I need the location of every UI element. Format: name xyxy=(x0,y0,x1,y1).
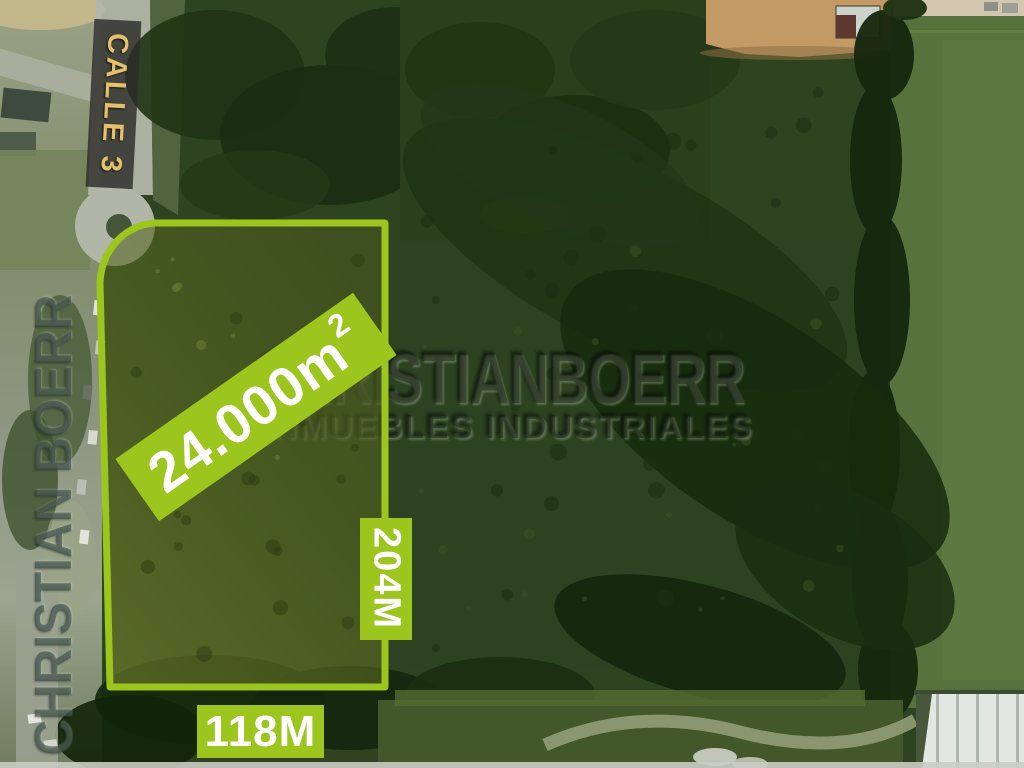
side-length-label: 204M xyxy=(360,518,412,640)
satellite-map: CHRISTIAN BOERR CHRISTIANBOERR INMUEBLES… xyxy=(0,0,1024,768)
plot-overlay xyxy=(0,0,1024,768)
frontage-label: 118M xyxy=(197,705,324,758)
side-length-text: 204M xyxy=(365,527,408,630)
street-label-text: CALLE 3 xyxy=(93,32,133,175)
street-label: CALLE 3 xyxy=(86,19,142,189)
frontage-text: 118M xyxy=(205,707,317,757)
